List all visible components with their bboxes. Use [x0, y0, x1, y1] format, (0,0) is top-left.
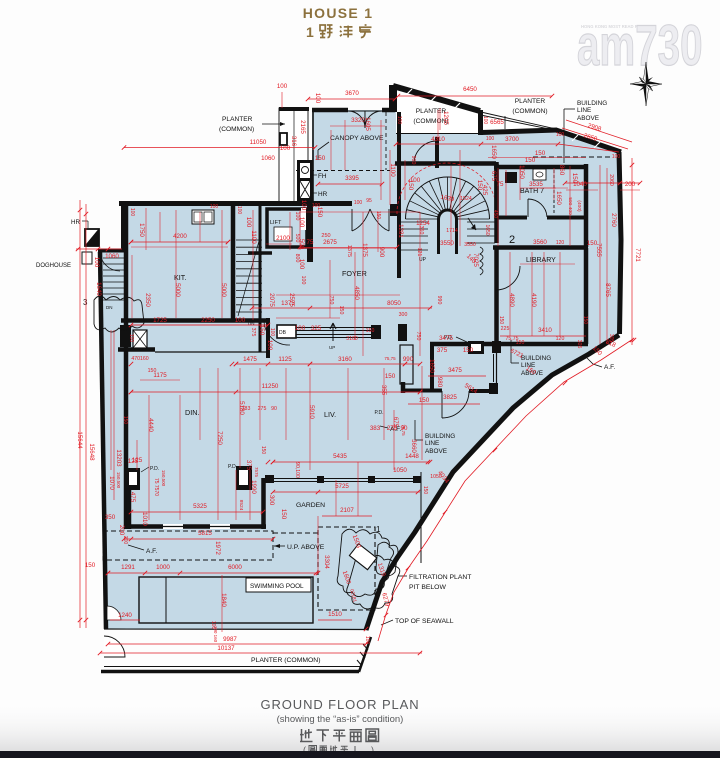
svg-text:95: 95 [366, 198, 372, 204]
svg-text:75,75: 75,75 [384, 356, 396, 361]
svg-text:980: 980 [436, 377, 443, 388]
svg-text:325: 325 [311, 325, 322, 332]
svg-text:5725: 5725 [335, 483, 349, 490]
svg-text:4850: 4850 [353, 286, 360, 300]
svg-text:121: 121 [416, 248, 422, 257]
svg-text:100: 100 [235, 317, 246, 324]
svg-text:2350: 2350 [144, 293, 151, 307]
svg-text:200: 200 [122, 536, 128, 545]
svg-text:DIN.: DIN. [185, 408, 199, 417]
svg-text:HR: HR [71, 219, 80, 226]
svg-text:100: 100 [482, 116, 488, 125]
svg-text:5000: 5000 [220, 283, 227, 297]
svg-text:7250: 7250 [216, 431, 223, 445]
svg-text:100: 100 [210, 621, 216, 630]
svg-text:75 7570: 75 7570 [153, 478, 159, 496]
svg-text:470160: 470160 [131, 356, 148, 362]
svg-text:1125: 1125 [278, 356, 292, 363]
svg-text:200: 200 [625, 181, 636, 188]
svg-text:PLANTER: PLANTER [515, 98, 546, 105]
svg-text:FH: FH [318, 173, 327, 180]
svg-text:P.D.: P.D. [150, 466, 159, 472]
svg-text:90,100: 90,100 [294, 462, 300, 478]
svg-text:2675: 2675 [323, 239, 337, 246]
svg-text:PLANTER: PLANTER [416, 108, 447, 115]
svg-text:1750: 1750 [138, 223, 145, 237]
svg-text:100: 100 [486, 136, 495, 142]
svg-text:100: 100 [280, 145, 291, 152]
svg-text:100: 100 [269, 328, 275, 337]
svg-text:150: 150 [280, 509, 287, 520]
svg-text:990: 990 [436, 296, 442, 305]
svg-text:225: 225 [501, 326, 510, 332]
svg-text:1448: 1448 [405, 453, 419, 460]
svg-text:750: 750 [415, 332, 421, 341]
svg-text:2760: 2760 [610, 213, 617, 227]
svg-text:2075: 2075 [268, 293, 275, 307]
svg-text:1070: 1070 [108, 476, 115, 490]
svg-text:75: 75 [497, 181, 504, 188]
svg-text:860: 860 [558, 165, 565, 176]
svg-text:100: 100 [295, 325, 306, 332]
svg-text:100: 100 [277, 83, 288, 90]
svg-text:LINE: LINE [577, 107, 591, 114]
svg-text:1640: 1640 [95, 282, 102, 296]
svg-text:LINE: LINE [425, 440, 439, 447]
svg-text:150: 150 [535, 150, 546, 157]
svg-text:LIBRARY: LIBRARY [526, 257, 556, 264]
svg-text:150: 150 [525, 157, 536, 164]
svg-text:LIV.: LIV. [324, 410, 336, 419]
svg-text:13203: 13203 [115, 449, 122, 467]
svg-text:100: 100 [236, 206, 242, 215]
svg-text:1205: 1205 [442, 111, 449, 125]
svg-text:1650: 1650 [555, 191, 562, 205]
svg-text:3304: 3304 [323, 555, 330, 569]
svg-text:5325: 5325 [193, 503, 207, 510]
svg-text:150: 150 [148, 368, 157, 374]
svg-text:DN: DN [106, 305, 113, 310]
svg-text:15648: 15648 [88, 443, 95, 461]
svg-text:4440: 4440 [147, 418, 154, 432]
svg-text:1010: 1010 [141, 512, 148, 526]
svg-text:3395: 3395 [345, 175, 359, 182]
svg-text:316: 316 [290, 136, 297, 147]
svg-text:5910: 5910 [308, 405, 315, 419]
svg-text:3160: 3160 [346, 336, 358, 342]
svg-text:P.D.: P.D. [374, 410, 383, 416]
svg-text:150: 150 [375, 211, 381, 220]
svg-text:150: 150 [516, 340, 525, 346]
svg-text:PIT BELOW: PIT BELOW [409, 584, 446, 591]
svg-text:PLANTER (COMMON): PLANTER (COMMON) [251, 657, 320, 664]
svg-text:8524: 8524 [238, 500, 244, 511]
svg-text:3550: 3550 [464, 242, 476, 248]
svg-text:900: 900 [378, 247, 385, 258]
svg-text:(showing the “as-is” condition: (showing the “as-is” condition) [277, 714, 404, 725]
svg-text:7555: 7555 [595, 243, 602, 257]
svg-text:100: 100 [410, 177, 421, 184]
svg-text:(COMMON): (COMMON) [512, 108, 547, 115]
svg-text:150,500: 150,500 [161, 470, 166, 487]
svg-text:2060: 2060 [608, 174, 614, 186]
svg-text:150: 150 [85, 562, 96, 569]
svg-text:1281: 1281 [397, 224, 404, 238]
svg-text:100: 100 [245, 217, 252, 228]
svg-text:1375: 1375 [281, 300, 295, 307]
svg-text:A.F.: A.F. [604, 364, 615, 371]
svg-text:2100: 2100 [276, 235, 290, 242]
svg-text:383: 383 [242, 406, 251, 412]
svg-text:BUILDING: BUILDING [521, 355, 551, 362]
svg-text:150: 150 [463, 347, 474, 354]
svg-text:1475: 1475 [243, 356, 257, 363]
svg-text:383: 383 [370, 425, 381, 432]
svg-text:3560: 3560 [533, 239, 547, 246]
svg-text:150: 150 [258, 325, 265, 336]
svg-text:100: 100 [312, 203, 321, 209]
svg-text:100: 100 [266, 340, 273, 351]
svg-text:350: 350 [418, 226, 424, 235]
svg-text:3825: 3825 [443, 394, 457, 401]
svg-text:BUILDING: BUILDING [577, 100, 607, 107]
svg-text:P.D.: P.D. [228, 464, 237, 470]
svg-text:100: 100 [294, 212, 300, 221]
svg-text:11250: 11250 [262, 383, 279, 390]
svg-text:120: 120 [556, 336, 565, 342]
svg-text:1650: 1650 [484, 224, 490, 235]
svg-text:375: 375 [437, 347, 448, 354]
svg-text:350: 350 [105, 514, 116, 521]
svg-text:150: 150 [422, 486, 428, 495]
svg-text:1000: 1000 [156, 564, 170, 571]
svg-text:250: 250 [321, 233, 330, 239]
svg-text:150: 150 [385, 373, 396, 380]
svg-text:CANOPY ABOVE: CANOPY ABOVE [330, 135, 384, 142]
svg-text:1725: 1725 [153, 317, 167, 324]
svg-text:150: 150 [338, 306, 344, 315]
svg-text:100: 100 [129, 208, 135, 217]
svg-text:HR: HR [318, 191, 328, 198]
svg-text:1510: 1510 [328, 611, 342, 618]
svg-text:1524: 1524 [460, 196, 472, 202]
svg-text:A.F.: A.F. [146, 548, 157, 555]
svg-text:1990: 1990 [250, 480, 257, 494]
svg-text:3320: 3320 [351, 117, 365, 124]
svg-text:100: 100 [300, 276, 306, 285]
svg-text:100: 100 [364, 636, 370, 645]
svg-text:475: 475 [129, 492, 136, 503]
svg-text:(400): (400) [576, 200, 582, 212]
svg-text:1100: 1100 [250, 230, 257, 244]
svg-text:990: 990 [403, 356, 414, 363]
svg-text:450: 450 [492, 210, 498, 219]
svg-text:5435: 5435 [333, 453, 347, 460]
svg-text:300: 300 [268, 495, 275, 506]
svg-text:U.P. ABOVE: U.P. ABOVE [287, 544, 325, 551]
svg-text:5000: 5000 [174, 283, 181, 297]
svg-text:LIFT: LIFT [270, 220, 282, 226]
svg-text:GROUND FLOOR PLAN: GROUND FLOOR PLAN [260, 697, 419, 712]
svg-text:150: 150 [419, 397, 430, 404]
svg-text:100: 100 [93, 257, 100, 268]
svg-text:150: 150 [582, 316, 588, 325]
svg-text:1: 1 [306, 24, 314, 40]
svg-text:4890: 4890 [508, 293, 515, 307]
svg-text:3660: 3660 [410, 439, 417, 453]
svg-text:200: 200 [118, 525, 125, 536]
svg-text:ABOVE: ABOVE [425, 448, 447, 455]
svg-text:3550: 3550 [440, 240, 454, 247]
svg-text:1840: 1840 [220, 593, 227, 607]
svg-text:4190: 4190 [530, 293, 537, 307]
svg-text:150: 150 [315, 155, 326, 162]
svg-text:15644: 15644 [76, 431, 83, 449]
svg-text:355: 355 [380, 385, 387, 396]
svg-text:3670: 3670 [345, 90, 359, 97]
svg-text:100: 100 [354, 200, 363, 206]
svg-text:1060: 1060 [105, 253, 119, 260]
svg-text:BATH 7: BATH 7 [520, 188, 544, 195]
svg-text:120: 120 [556, 240, 565, 246]
svg-text:8765: 8765 [604, 283, 611, 297]
svg-text:3475: 3475 [439, 335, 453, 342]
svg-text:5815: 5815 [198, 530, 212, 537]
svg-text:DB: DB [279, 330, 287, 336]
svg-text:100: 100 [210, 204, 219, 210]
svg-text:1: 1 [376, 525, 381, 534]
svg-text:1050: 1050 [518, 165, 525, 179]
svg-text:375: 375 [245, 460, 252, 471]
svg-text:8050: 8050 [387, 300, 401, 307]
svg-text:DOGHOUSE: DOGHOUSE [36, 263, 71, 269]
svg-text:800: 800 [294, 254, 300, 263]
svg-text:100: 100 [128, 334, 134, 343]
svg-text:150: 150 [498, 316, 504, 325]
svg-text:900: 900 [410, 156, 416, 165]
svg-text:11050: 11050 [250, 139, 267, 146]
svg-text:100: 100 [612, 154, 621, 160]
svg-text:1060: 1060 [261, 155, 275, 162]
svg-text:100: 100 [556, 132, 565, 138]
svg-text:FILTRATION PLANT: FILTRATION PLANT [409, 574, 471, 581]
svg-text:275: 275 [258, 406, 267, 412]
svg-text:(COMMON): (COMMON) [219, 126, 254, 133]
svg-text:7721: 7721 [634, 248, 641, 262]
svg-text:2107: 2107 [340, 507, 354, 514]
svg-text:GARDEN: GARDEN [296, 502, 325, 509]
svg-text:am730: am730 [577, 14, 703, 78]
svg-text:2250: 2250 [201, 317, 215, 324]
svg-text:75: 75 [307, 239, 314, 246]
svg-text:BUILDING: BUILDING [425, 433, 455, 440]
svg-text:90: 90 [271, 406, 277, 412]
svg-text:6565: 6565 [490, 119, 504, 126]
svg-text:2: 2 [509, 234, 515, 246]
svg-text:SWIMMING POOL: SWIMMING POOL [250, 583, 304, 590]
svg-text:1714: 1714 [446, 228, 458, 234]
svg-text:100: 100 [300, 200, 307, 211]
svg-text:1375: 1375 [361, 243, 368, 257]
svg-text:305: 305 [576, 340, 582, 349]
svg-text:275: 275 [387, 425, 398, 432]
svg-text:ABOVE: ABOVE [577, 115, 599, 122]
svg-text:500: 500 [294, 234, 300, 243]
svg-text:3160: 3160 [338, 356, 352, 363]
svg-text:1240: 1240 [118, 612, 132, 619]
svg-text:1291: 1291 [121, 564, 135, 571]
svg-text:10137: 10137 [217, 645, 235, 652]
svg-text:150: 150 [366, 328, 375, 334]
svg-text:UP: UP [329, 345, 335, 350]
svg-text:HOUSE 1: HOUSE 1 [303, 5, 374, 21]
svg-text:300: 300 [399, 312, 408, 318]
svg-text:750: 750 [328, 296, 334, 305]
svg-text:2165: 2165 [299, 120, 306, 134]
svg-text:1972: 1972 [214, 541, 221, 555]
svg-text:6450: 6450 [463, 86, 477, 93]
svg-text:375: 375 [250, 328, 256, 337]
svg-text:3: 3 [83, 298, 88, 307]
svg-text:3700: 3700 [505, 136, 519, 143]
svg-text:150: 150 [260, 446, 266, 455]
svg-text:3535: 3535 [529, 181, 543, 188]
svg-text:1650: 1650 [428, 359, 435, 373]
svg-text:150: 150 [122, 416, 128, 425]
svg-text:1605: 1605 [364, 117, 371, 131]
svg-text:3475: 3475 [448, 367, 462, 374]
svg-text:1375: 1375 [346, 245, 352, 257]
svg-text:1040: 1040 [573, 181, 587, 188]
svg-text:7575: 7575 [254, 467, 259, 478]
svg-text:4200: 4200 [173, 233, 187, 240]
svg-text:1050: 1050 [393, 467, 407, 474]
svg-text:PLANTER: PLANTER [222, 116, 253, 123]
svg-text:9987: 9987 [223, 636, 237, 643]
svg-text:TOP OF SEAWALL: TOP OF SEAWALL [395, 618, 454, 625]
svg-text:150,500: 150,500 [116, 472, 121, 489]
svg-text:3410: 3410 [538, 327, 552, 334]
svg-text:425: 425 [481, 185, 488, 196]
svg-text:6000: 6000 [228, 564, 242, 571]
svg-text:100: 100 [396, 116, 402, 125]
svg-text:100: 100 [314, 93, 321, 104]
svg-text:90: 90 [401, 425, 408, 432]
